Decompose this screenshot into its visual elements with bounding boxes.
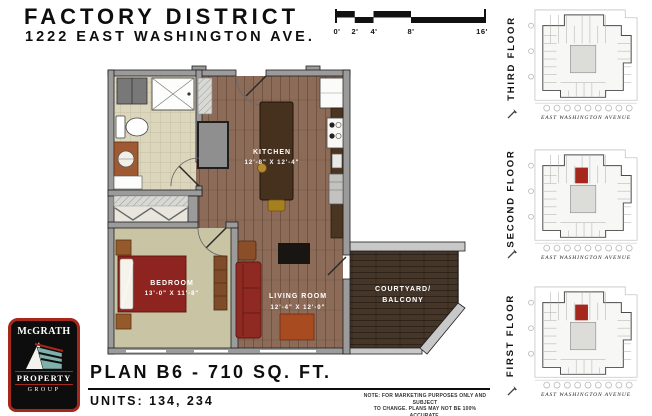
street-label: EAST WASHINGTON AVENUE xyxy=(526,392,646,398)
range xyxy=(327,118,343,148)
site-key-map xyxy=(526,283,646,391)
mechanical-closet xyxy=(198,122,228,168)
wall-top-right xyxy=(266,70,350,76)
street-label: EAST WASHINGTON AVENUE xyxy=(526,255,646,261)
courtyard-railing-bottom xyxy=(343,348,422,354)
note-line-2: TO CHANGE. PLANS MAY NOT BE 100% ACCURAT… xyxy=(358,406,492,416)
logo-group: GROUP xyxy=(28,387,61,393)
windows xyxy=(126,350,316,352)
building-icon xyxy=(23,339,65,371)
highlighted-unit xyxy=(575,168,588,184)
shower-head-icon xyxy=(187,92,190,95)
plan-title: PLAN B6 - 710 SQ. FT. xyxy=(90,362,332,383)
wall-hall-stub xyxy=(188,196,198,224)
floor-plan-flyer: FACTORY DISTRICT 1222 EAST WASHINGTON AV… xyxy=(0,0,652,416)
key-plan-third-floor: THIRD FLOOR EAST WASHINGTON AVENUE xyxy=(502,4,652,136)
note-line-1: NOTE: FOR MARKETING PURPOSES ONLY AND SU… xyxy=(358,393,492,406)
scale-segment xyxy=(411,17,485,23)
scale-label: 2' xyxy=(352,27,359,36)
bedroom-closet-shelf xyxy=(114,196,188,206)
wall-right-upper xyxy=(343,70,350,255)
bar-stool xyxy=(268,200,285,211)
page-title: FACTORY DISTRICT xyxy=(24,4,299,30)
bed-pillow xyxy=(120,259,133,309)
scale-segment xyxy=(336,11,355,18)
coat-closet xyxy=(198,78,212,114)
armchair xyxy=(238,241,256,260)
street-label: EAST WASHINGTON AVENUE xyxy=(526,115,646,121)
wall-bedroom-top-stub xyxy=(226,222,238,228)
dishwasher xyxy=(329,174,343,204)
courtyard-label: COURTYARD/ xyxy=(375,286,431,293)
key-plan-second-floor: SECOND FLOOR EAST WASHINGTON AVENUE xyxy=(502,144,652,276)
key-plan-panel: THIRD FLOOR EAST WASHINGTON AVENUE SECON… xyxy=(502,0,652,416)
wall-right-lower xyxy=(343,279,350,354)
site-key-map xyxy=(526,6,646,114)
floor-label: SECOND FLOOR xyxy=(502,144,520,252)
scale-label: 0' xyxy=(334,27,341,36)
plan-units: UNITS: 134, 234 xyxy=(90,394,214,408)
toilet-tank xyxy=(116,116,125,138)
linen-cabinet xyxy=(114,176,142,189)
scale-segment xyxy=(374,11,412,18)
toilet xyxy=(126,118,148,136)
scale-segment xyxy=(355,17,374,23)
logo-name: McGRATH xyxy=(17,326,70,337)
scale-label: 16' xyxy=(476,27,488,36)
scale-label: 4' xyxy=(371,27,378,36)
wall-bathroom-bottom xyxy=(108,190,202,196)
page-subtitle: 1222 EAST WASHINGTON AVE. xyxy=(25,29,315,45)
kitchen-dims: 12'-8" X 12'-4" xyxy=(245,160,300,166)
window xyxy=(260,350,316,352)
highlighted-unit xyxy=(575,305,588,321)
mcgrath-logo: McGRATH PROPERTY GROUP xyxy=(8,318,80,412)
wall-top-left xyxy=(108,70,236,76)
living-room-label: LIVING ROOM xyxy=(269,293,327,300)
bedroom-dims: 13'-0" X 11'-8" xyxy=(145,291,200,297)
courtyard-railing-top xyxy=(350,242,465,251)
key-plan-first-floor: FIRST FLOOR EAST WASHINGTON AVENUE xyxy=(502,281,652,413)
north-arrow-icon xyxy=(506,385,518,397)
floor-label: FIRST FLOOR xyxy=(502,281,520,389)
north-arrow-icon xyxy=(506,248,518,260)
wall-left xyxy=(108,70,114,354)
scale-bar: 0' 2' 4' 8' 16' xyxy=(333,7,495,39)
nightstand xyxy=(116,240,131,255)
disclaimer-note: NOTE: FOR MARKETING PURPOSES ONLY AND SU… xyxy=(358,393,492,416)
tv-console xyxy=(278,243,310,264)
site-key-map xyxy=(526,146,646,254)
unit-floor-plan: KITCHEN 12'-8" X 12'-4" BEDROOM 13'-0" X… xyxy=(100,62,472,362)
window xyxy=(194,350,228,352)
wall-bedroom-top xyxy=(108,222,198,228)
living-room-dims: 12'-4" X 12'-0" xyxy=(271,305,326,311)
courtyard-label2: BALCONY xyxy=(382,297,424,304)
kitchen-label: KITCHEN xyxy=(253,149,291,156)
coffee-table xyxy=(280,314,314,340)
kitchen-sink xyxy=(332,154,342,168)
scale-label: 8' xyxy=(408,27,415,36)
window xyxy=(126,350,166,352)
sofa xyxy=(236,262,261,338)
bedroom-label: BEDROOM xyxy=(150,280,194,287)
floor-label: THIRD FLOOR xyxy=(502,4,520,112)
divider-rule xyxy=(88,388,490,390)
nightstand xyxy=(116,314,131,329)
north-arrow-icon xyxy=(506,108,518,120)
logo-property: PROPERTY xyxy=(15,371,73,385)
